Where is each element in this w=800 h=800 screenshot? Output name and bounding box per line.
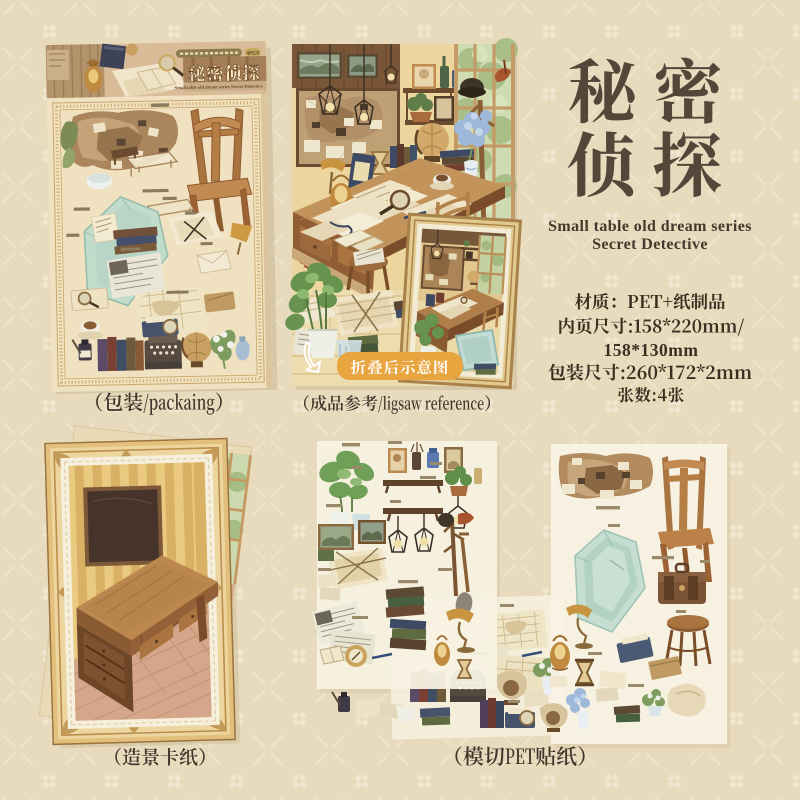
svg-text:Secret Detective: Secret Detective xyxy=(592,236,708,253)
svg-text:4PCS: 4PCS xyxy=(246,51,260,57)
svg-text:Small table old dream series: Small table old dream series xyxy=(548,218,752,235)
svg-text:158*130mm: 158*130mm xyxy=(604,340,699,360)
